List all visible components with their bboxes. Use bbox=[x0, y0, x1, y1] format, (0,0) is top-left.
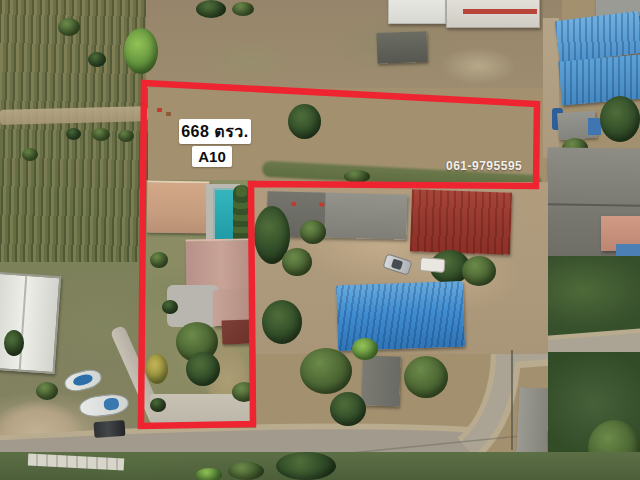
area-label: 668 ตรว. bbox=[179, 119, 251, 144]
phone-number-label: 061-9795595 bbox=[446, 159, 556, 175]
plot-id-label: A10 bbox=[192, 146, 232, 167]
plot-boundary-overlay bbox=[0, 0, 640, 480]
aerial-property-photo: 668 ตรว. A10 061-9795595 bbox=[0, 0, 640, 480]
